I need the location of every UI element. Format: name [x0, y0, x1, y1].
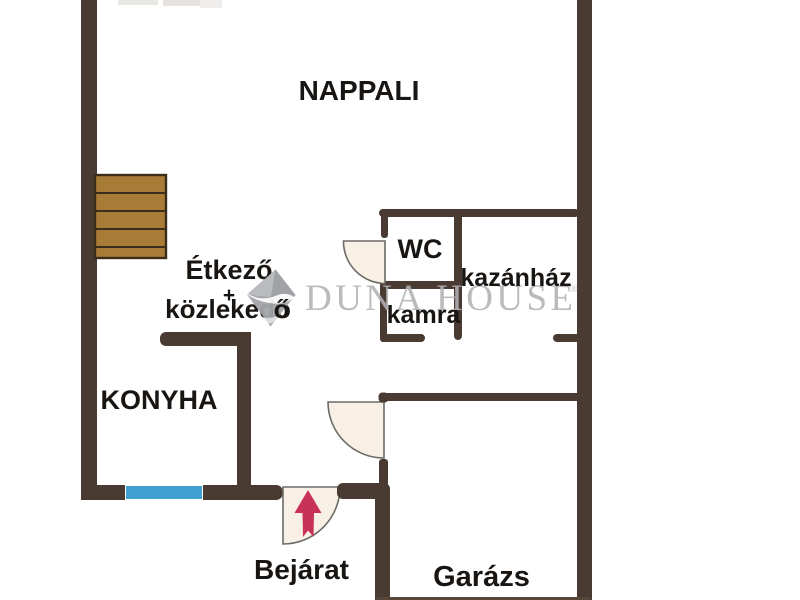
svg-text:KONYHA: KONYHA — [100, 385, 217, 415]
svg-text:ő: ő — [274, 294, 290, 324]
svg-text:Garázs: Garázs — [433, 561, 530, 593]
svg-text:NAPPALI: NAPPALI — [299, 75, 420, 106]
svg-text:WC: WC — [398, 234, 443, 264]
svg-text:Étkező: Étkező — [185, 254, 272, 285]
svg-text:Bejárat: Bejárat — [254, 554, 349, 585]
svg-text:kazánház: kazánház — [460, 264, 571, 292]
